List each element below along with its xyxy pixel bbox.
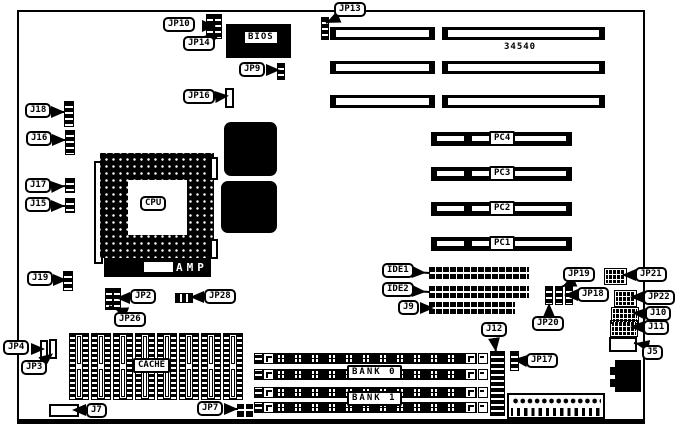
label-j9: J9: [398, 300, 419, 315]
label-ide1: IDE1: [382, 263, 414, 278]
label-j12: J12: [481, 322, 507, 337]
callout-jp13: [326, 17, 339, 23]
label-j17: J17: [25, 178, 51, 193]
label-bank0: BANK 0: [347, 365, 402, 380]
label-j10: J10: [645, 306, 671, 321]
callout-ide1: [412, 272, 430, 273]
callout-jp19: [559, 281, 575, 288]
label-pc4: PC4: [489, 131, 515, 146]
label-j18: J18: [25, 103, 51, 118]
label-j5: J5: [642, 345, 663, 360]
label-pc2: PC2: [489, 201, 515, 216]
motherboard-diagram: 34540 PC4 PC3 PC2 PC1 BIOS CPU AMP CACHE: [0, 0, 680, 424]
label-j16: J16: [26, 131, 52, 146]
label-jp7: JP7: [197, 401, 223, 416]
label-j19: J19: [27, 271, 53, 286]
label-cpu: CPU: [140, 196, 166, 211]
callout-j17: [51, 186, 66, 187]
callout-j12: [494, 338, 496, 352]
label-jp4: JP4: [3, 340, 29, 355]
label-pc1: PC1: [489, 236, 515, 251]
label-jp17: JP17: [526, 353, 558, 368]
label-j11: J11: [643, 320, 669, 335]
label-jp2: JP2: [130, 289, 156, 304]
label-jp16: JP16: [183, 89, 215, 104]
label-jp3: JP3: [21, 360, 47, 375]
label-bank1: BANK 1: [347, 391, 402, 406]
label-jp26: JP26: [114, 312, 146, 327]
label-jp9: JP9: [239, 62, 265, 77]
label-jp18: JP18: [577, 287, 609, 302]
label-jp14: JP14: [183, 36, 215, 51]
label-jp19: JP19: [563, 267, 595, 282]
label-j7: J7: [86, 403, 107, 418]
label-jp21: JP21: [635, 267, 667, 282]
label-jp28: JP28: [204, 289, 236, 304]
label-pc3: PC3: [489, 166, 515, 181]
label-j15: J15: [25, 197, 51, 212]
label-cache: CACHE: [133, 358, 170, 373]
label-jp22: JP22: [643, 290, 675, 305]
label-jp10: JP10: [163, 17, 195, 32]
callout-jp16: [215, 96, 226, 97]
callout-ide2: [412, 291, 430, 292]
label-jp20: JP20: [532, 316, 564, 331]
label-ide2: IDE2: [382, 282, 414, 297]
label-jp13: JP13: [334, 2, 366, 17]
label-bios: BIOS: [244, 31, 278, 44]
callout-lines: [0, 0, 680, 424]
